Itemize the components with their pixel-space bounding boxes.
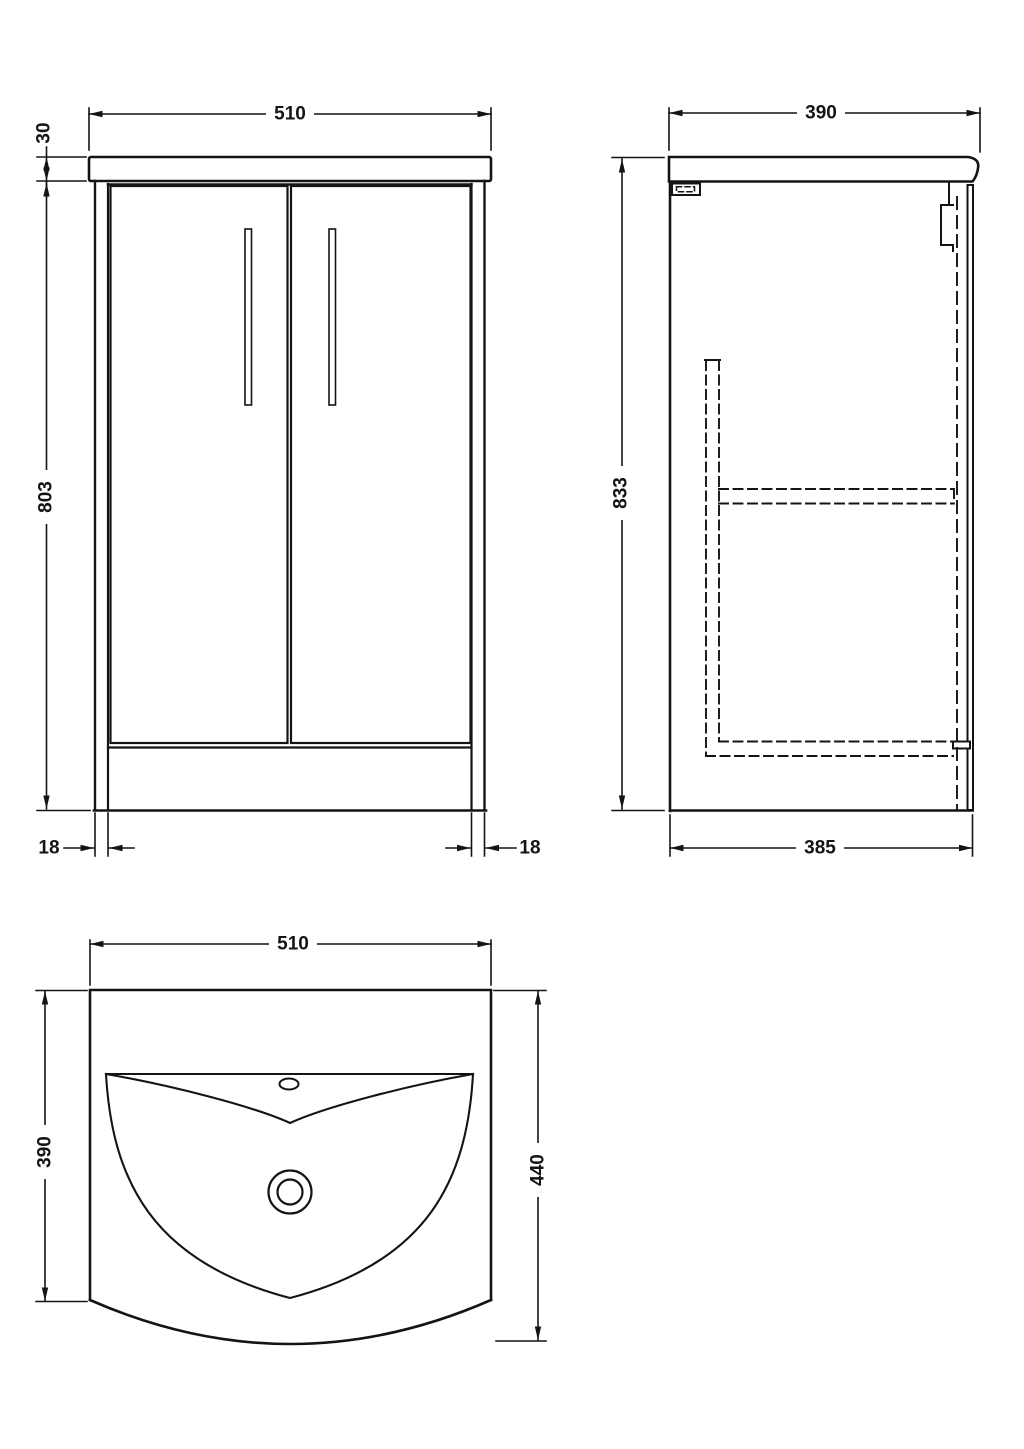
front-right-door-handle (329, 229, 336, 405)
dim-label-front-counter-thickness: 30 (34, 122, 55, 143)
dim-label-front-panel-left: 18 (38, 838, 59, 859)
dim-side-base-depth: 385 (670, 815, 973, 859)
side-countertop-profile (669, 157, 978, 182)
side-view: 390 833 385 (611, 102, 981, 859)
front-view: 510 30 803 18 18 (34, 103, 541, 859)
side-hidden-lines (706, 197, 957, 809)
side-wall-bracket-hidden-detail (677, 187, 695, 192)
front-left-door-handle (245, 229, 252, 405)
canvas: 510 30 803 18 18 (0, 0, 1024, 1449)
plan-drain-outer (269, 1171, 312, 1214)
dim-front-panel-right: 18 (446, 813, 541, 859)
plan-basin-back-slope (106, 1074, 473, 1123)
dim-front-height: 803 (36, 183, 91, 811)
dim-label-plan-width: 510 (277, 934, 309, 955)
dim-label-side-height: 833 (611, 477, 632, 509)
side-bottom-hinge (953, 742, 970, 749)
dim-label-side-base-depth: 385 (804, 838, 836, 859)
dim-label-plan-overall-depth: 440 (528, 1154, 549, 1186)
side-top-hinge (941, 196, 953, 251)
dim-label-front-panel-right: 18 (519, 838, 540, 859)
plan-drain-inner (278, 1180, 303, 1205)
front-left-door (111, 186, 288, 743)
dim-label-plan-depth: 390 (35, 1136, 56, 1168)
plan-front-bow-edge (90, 1300, 491, 1344)
technical-drawing: 510 30 803 18 18 (0, 0, 1024, 1449)
dim-side-depth: 390 (669, 102, 980, 152)
dim-front-width: 510 (89, 103, 491, 150)
dim-front-panel-left: 18 (38, 813, 134, 859)
front-right-door (291, 186, 471, 743)
dim-plan-width: 510 (90, 933, 491, 985)
dim-label-front-height: 803 (36, 481, 57, 513)
dim-plan-overall-depth: 440 (494, 991, 549, 1342)
plan-tap-hole (280, 1079, 299, 1090)
dim-plan-depth: 390 (35, 991, 88, 1302)
plan-counter-outline (90, 990, 491, 1300)
dim-label-front-width: 510 (274, 104, 306, 125)
dim-label-side-depth: 390 (805, 103, 837, 124)
side-shelf-hidden (719, 489, 954, 504)
dim-front-counter-thickness: 30 (34, 122, 87, 197)
plan-view: 510 390 440 (35, 933, 550, 1344)
front-countertop (89, 157, 491, 181)
side-door-edge (968, 185, 974, 810)
plan-basin-bowl-rim (106, 1074, 473, 1298)
dim-side-height: 833 (611, 158, 665, 811)
